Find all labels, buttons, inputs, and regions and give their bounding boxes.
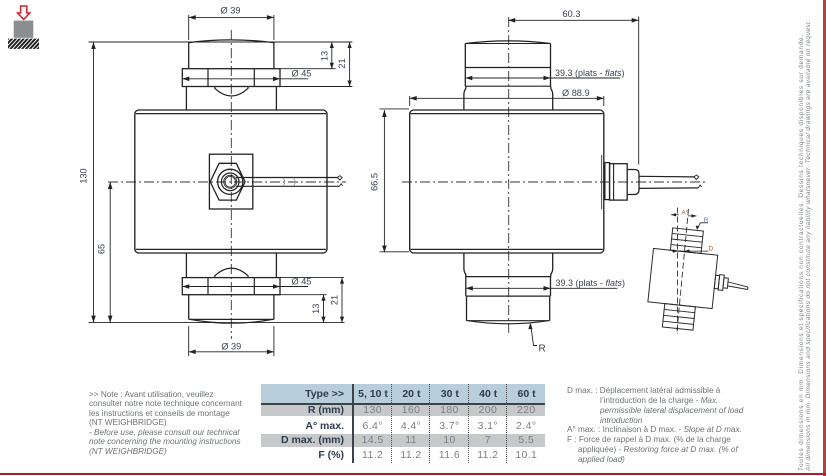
svg-text:Ø 39: Ø 39 [221, 342, 241, 352]
svg-text:D: D [709, 245, 714, 252]
svg-text:Ø 39: Ø 39 [221, 6, 241, 16]
svg-text:R: R [539, 344, 546, 355]
svg-text:Ø 88.9: Ø 88.9 [562, 88, 590, 98]
svg-text:21: 21 [337, 58, 347, 68]
svg-text:39.3 (plats - flats): 39.3 (plats - flats) [555, 68, 625, 78]
svg-text:65: 65 [97, 244, 107, 254]
svg-text:39.3 (plats - flats): 39.3 (plats - flats) [556, 278, 626, 288]
svg-text:R: R [704, 217, 709, 224]
svg-text:130: 130 [79, 168, 89, 183]
svg-text:Ø 45: Ø 45 [292, 69, 312, 79]
svg-text:21: 21 [329, 295, 339, 305]
svg-text:13: 13 [311, 304, 321, 314]
svg-text:A°: A° [681, 209, 688, 217]
svg-text:66.5: 66.5 [370, 173, 380, 191]
svg-text:60.3: 60.3 [563, 9, 581, 19]
svg-text:13: 13 [320, 51, 330, 61]
